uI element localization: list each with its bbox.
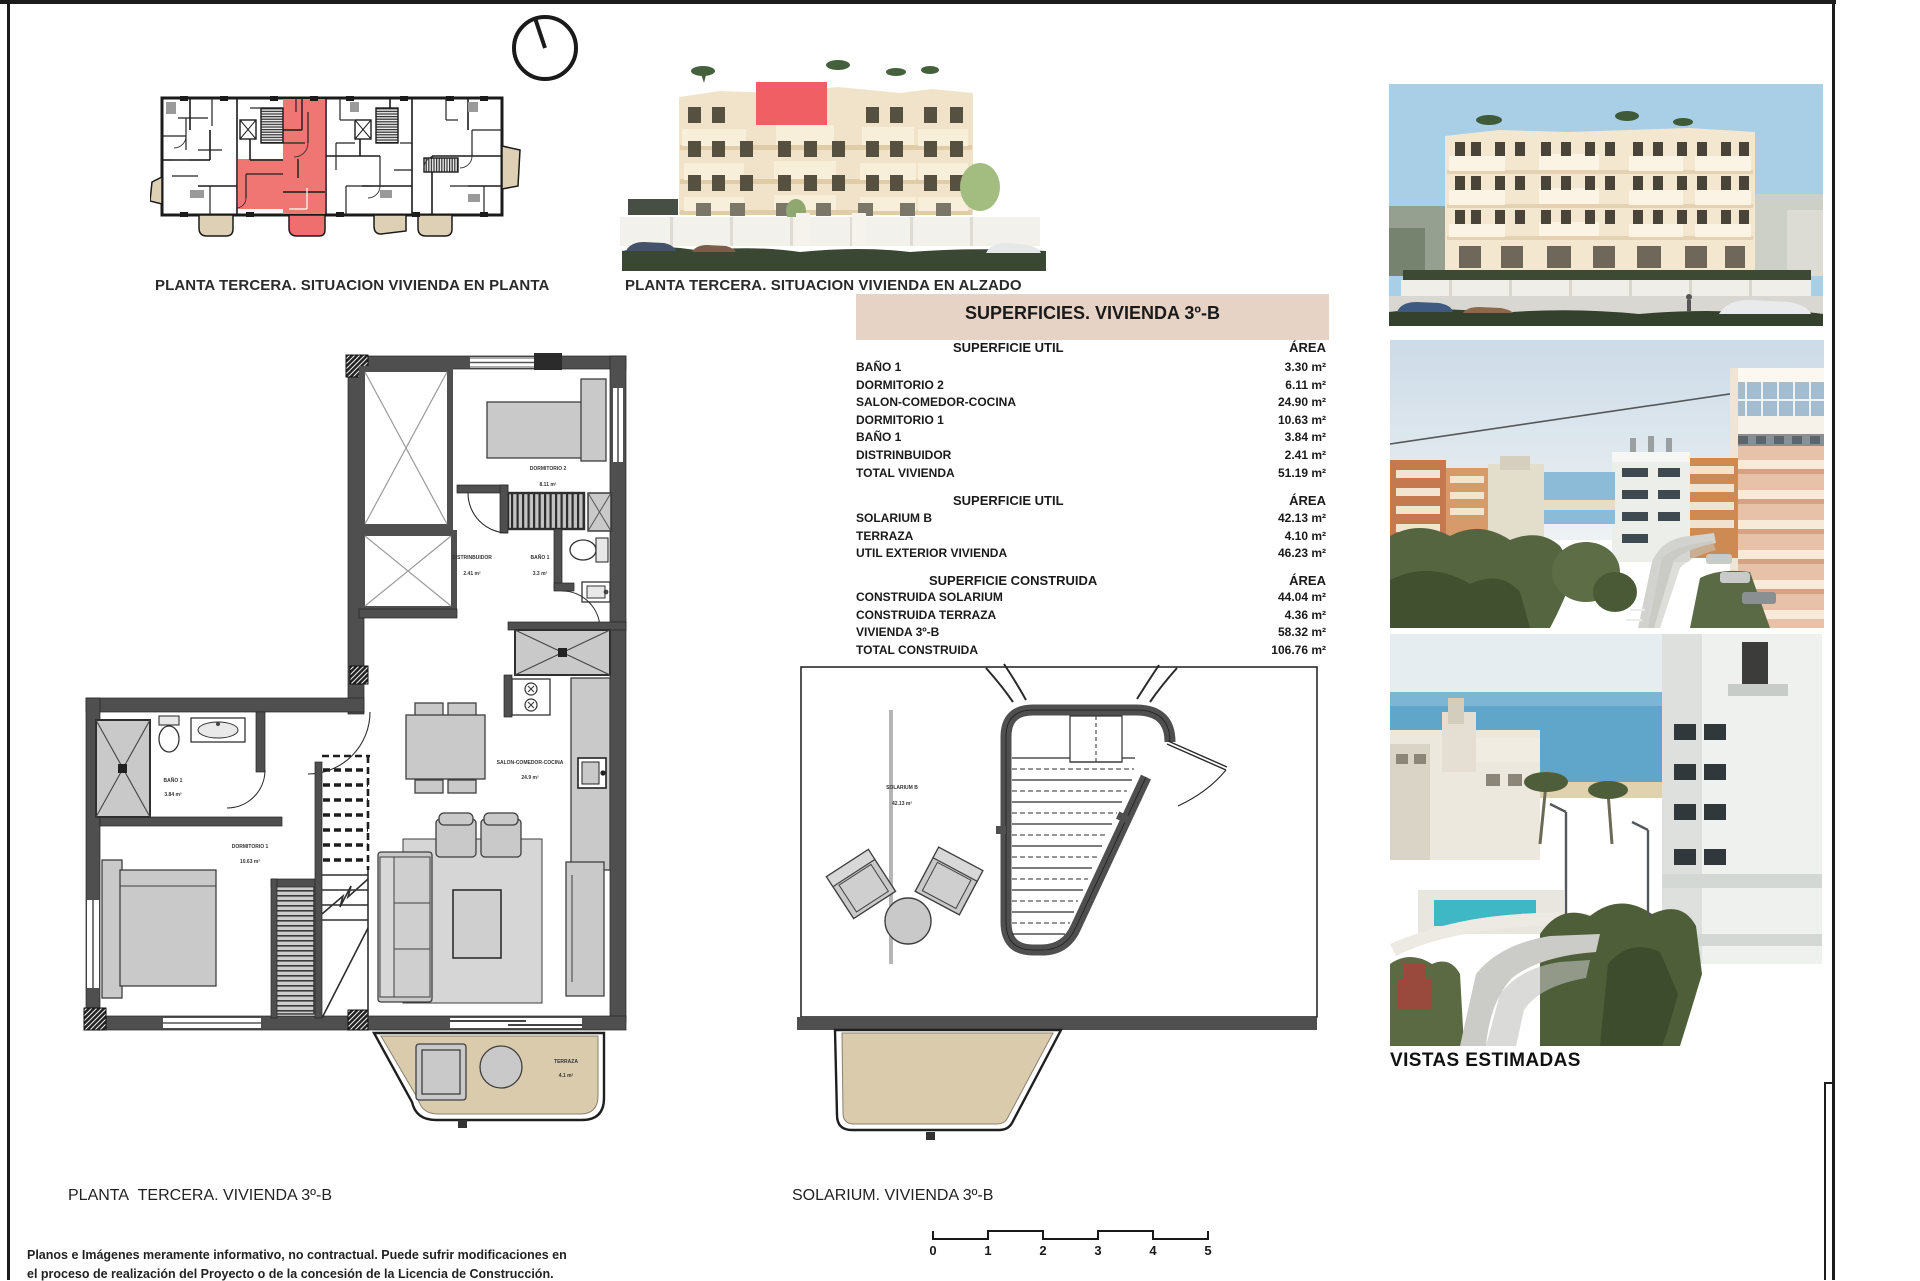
svg-text:DORMITORIO 1: DORMITORIO 1 [232, 844, 269, 850]
svg-text:3: 3 [1094, 1243, 1101, 1258]
svg-text:4.1 m²: 4.1 m² [559, 1073, 574, 1079]
svg-text:3.84 m²: 3.84 m² [164, 792, 182, 798]
svg-text:BAÑO 1: BAÑO 1 [531, 554, 550, 561]
svg-text:4: 4 [1149, 1243, 1157, 1258]
svg-text:5: 5 [1204, 1243, 1211, 1258]
svg-text:8.11 m²: 8.11 m² [540, 482, 557, 488]
svg-text:SOLARIUM B: SOLARIUM B [886, 785, 918, 791]
svg-text:1: 1 [984, 1243, 991, 1258]
svg-text:DISTRINBUIDOR: DISTRINBUIDOR [452, 555, 492, 561]
svg-text:2: 2 [1039, 1243, 1046, 1258]
svg-text:0: 0 [929, 1243, 936, 1258]
svg-text:DORMITORIO 2: DORMITORIO 2 [530, 466, 567, 472]
svg-text:42.13 m²: 42.13 m² [892, 801, 912, 807]
svg-text:SALON-COMEDOR-COCINA: SALON-COMEDOR-COCINA [497, 760, 564, 766]
svg-text:24.9 m²: 24.9 m² [521, 775, 539, 781]
svg-text:TERRAZA: TERRAZA [554, 1059, 578, 1065]
svg-text:3.3 m²: 3.3 m² [533, 571, 548, 577]
svg-text:BAÑO 1: BAÑO 1 [164, 777, 183, 784]
svg-text:10.63 m²: 10.63 m² [240, 859, 260, 865]
svg-text:2.41 m²: 2.41 m² [463, 571, 481, 577]
